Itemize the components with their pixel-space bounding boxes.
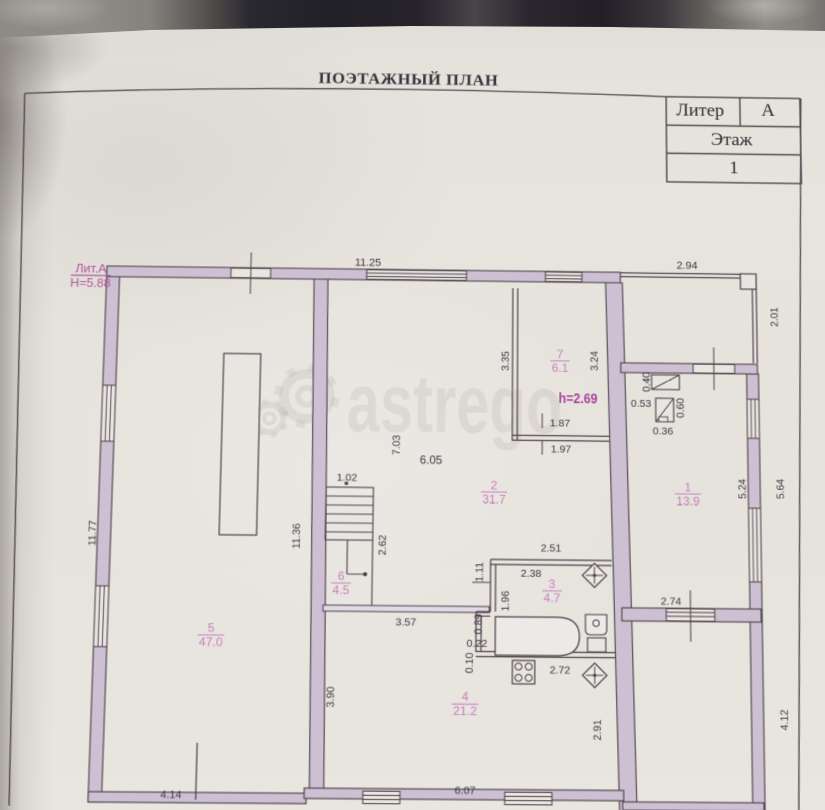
svg-text:2: 2 [491,480,498,493]
svg-text:Лит.А: Лит.А [75,261,107,276]
svg-text:2.62: 2.62 [377,534,389,555]
svg-text:47.0: 47.0 [199,636,223,649]
svg-text:0.10: 0.10 [464,652,476,673]
svg-text:1: 1 [729,157,739,177]
svg-text:13.9: 13.9 [676,495,699,508]
svg-text:4.12: 4.12 [779,709,791,730]
svg-text:Литер: Литер [676,100,724,120]
svg-text:11.36: 11.36 [291,523,303,549]
svg-text:5.24: 5.24 [737,478,749,499]
svg-text:1.96: 1.96 [500,590,512,611]
svg-text:3.90: 3.90 [325,686,337,707]
svg-text:astrego: astrego [346,357,562,451]
svg-text:6.05: 6.05 [420,455,443,468]
svg-text:2.74: 2.74 [661,596,682,608]
svg-text:5: 5 [208,622,215,635]
svg-text:2.94: 2.94 [676,260,697,271]
svg-text:1.87: 1.87 [550,418,571,430]
svg-text:1.97: 1.97 [551,444,572,456]
svg-text:Н=5.88: Н=5.88 [70,276,111,291]
svg-text:1.02: 1.02 [337,472,358,484]
svg-text:4.14: 4.14 [160,789,182,801]
svg-text:7: 7 [557,349,564,361]
svg-text:2.38: 2.38 [521,568,542,580]
svg-text:1: 1 [685,482,692,495]
svg-text:3.57: 3.57 [395,617,416,629]
svg-text:2.72: 2.72 [550,665,571,677]
svg-text:3: 3 [549,578,556,591]
svg-text:2.01: 2.01 [769,307,781,327]
svg-text:0.60: 0.60 [675,398,687,419]
svg-text:5.64: 5.64 [775,478,787,499]
svg-text:ПОЭТАЖНЫЙ ПЛАН: ПОЭТАЖНЫЙ ПЛАН [318,68,498,89]
svg-text:2.51: 2.51 [541,543,562,555]
svg-text:0.53: 0.53 [631,398,652,410]
svg-text:6: 6 [338,570,345,583]
svg-text:31.7: 31.7 [482,493,506,506]
svg-text:0.36: 0.36 [653,426,674,438]
svg-text:h=2.69: h=2.69 [559,390,598,406]
svg-text:7.03: 7.03 [391,434,403,455]
svg-text:А: А [761,100,775,120]
svg-text:3.24: 3.24 [589,351,601,371]
svg-text:6.07: 6.07 [454,785,476,797]
svg-text:Этаж: Этаж [711,129,753,149]
svg-text:4.7: 4.7 [544,592,561,605]
svg-text:3.35: 3.35 [500,351,512,371]
svg-text:0.40: 0.40 [641,372,653,392]
svg-text:21.2: 21.2 [453,705,477,718]
svg-text:4: 4 [462,691,469,704]
svg-text:11.77: 11.77 [87,520,100,546]
svg-text:0.22: 0.22 [467,638,488,650]
svg-text:2.91: 2.91 [592,719,604,741]
svg-text:1.11: 1.11 [474,562,486,582]
svg-text:0.89: 0.89 [473,613,485,634]
svg-text:11.25: 11.25 [355,257,382,268]
svg-text:4.5: 4.5 [332,584,349,597]
svg-text:6.1: 6.1 [552,362,569,374]
